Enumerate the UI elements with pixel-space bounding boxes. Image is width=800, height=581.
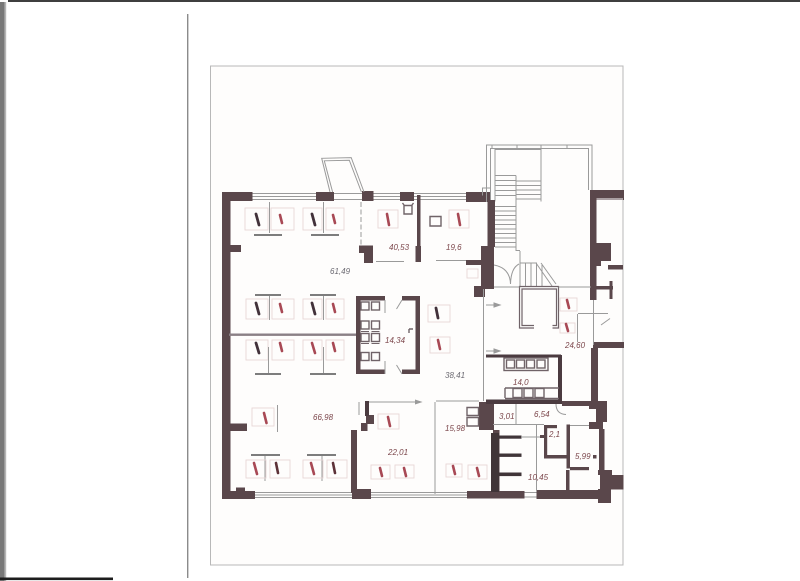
svg-text:61,49: 61,49 (330, 267, 351, 276)
svg-text:3,01: 3,01 (499, 412, 515, 421)
svg-text:19,6: 19,6 (446, 243, 462, 252)
svg-text:14,34: 14,34 (385, 336, 406, 345)
svg-text:24,60: 24,60 (564, 341, 586, 350)
svg-text:15,98: 15,98 (445, 424, 466, 433)
svg-text:14,0: 14,0 (513, 378, 529, 387)
svg-text:40,53: 40,53 (389, 243, 410, 252)
svg-text:5,99: 5,99 (575, 452, 591, 461)
svg-text:22,01: 22,01 (387, 448, 408, 457)
svg-text:6,54: 6,54 (534, 410, 550, 419)
svg-text:38,41: 38,41 (445, 371, 465, 380)
svg-text:10,45: 10,45 (528, 473, 549, 482)
svg-text:2,1: 2,1 (548, 430, 560, 439)
svg-text:66,98: 66,98 (313, 413, 334, 422)
